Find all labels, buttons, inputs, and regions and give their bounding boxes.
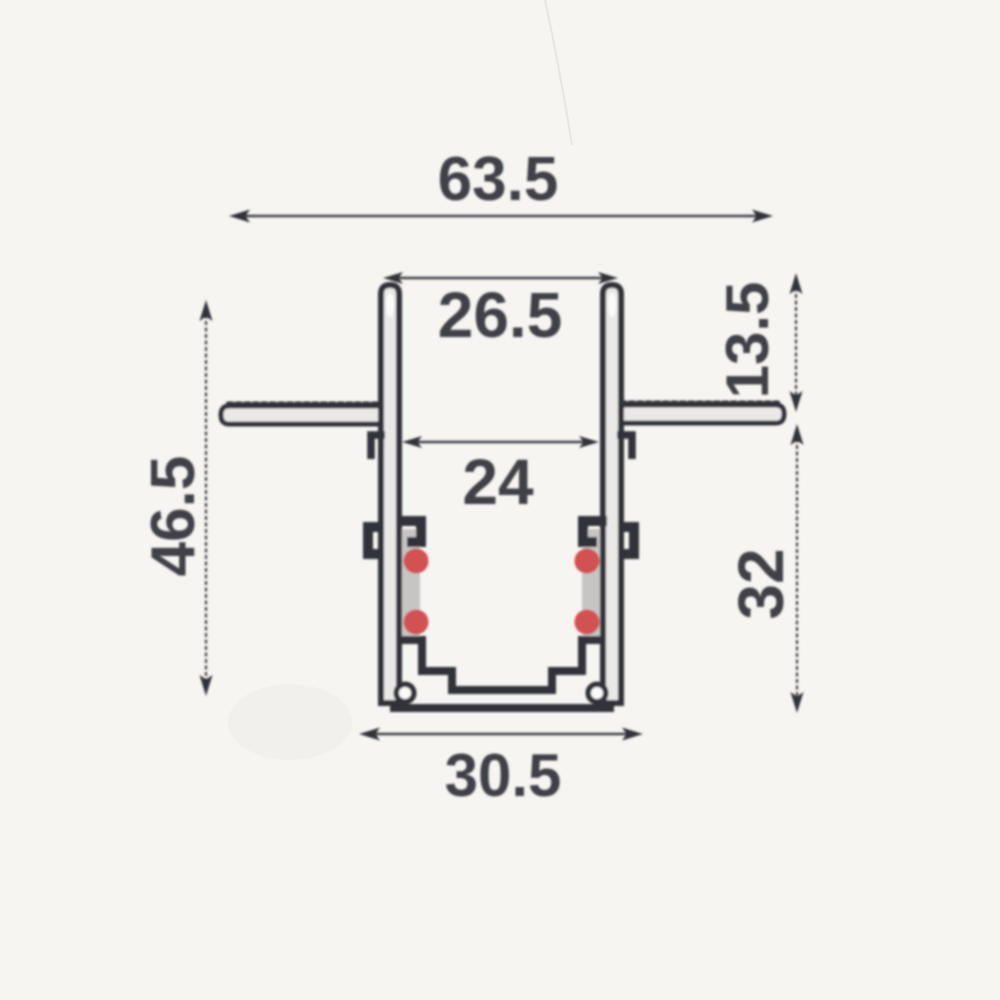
svg-text:26.5: 26.5 <box>438 279 563 351</box>
svg-text:63.5: 63.5 <box>438 145 559 214</box>
svg-text:24: 24 <box>462 446 534 518</box>
svg-text:46.5: 46.5 <box>139 456 208 577</box>
svg-text:32: 32 <box>725 548 797 619</box>
svg-text:30.5: 30.5 <box>445 742 562 809</box>
svg-text:13.5: 13.5 <box>714 282 781 399</box>
